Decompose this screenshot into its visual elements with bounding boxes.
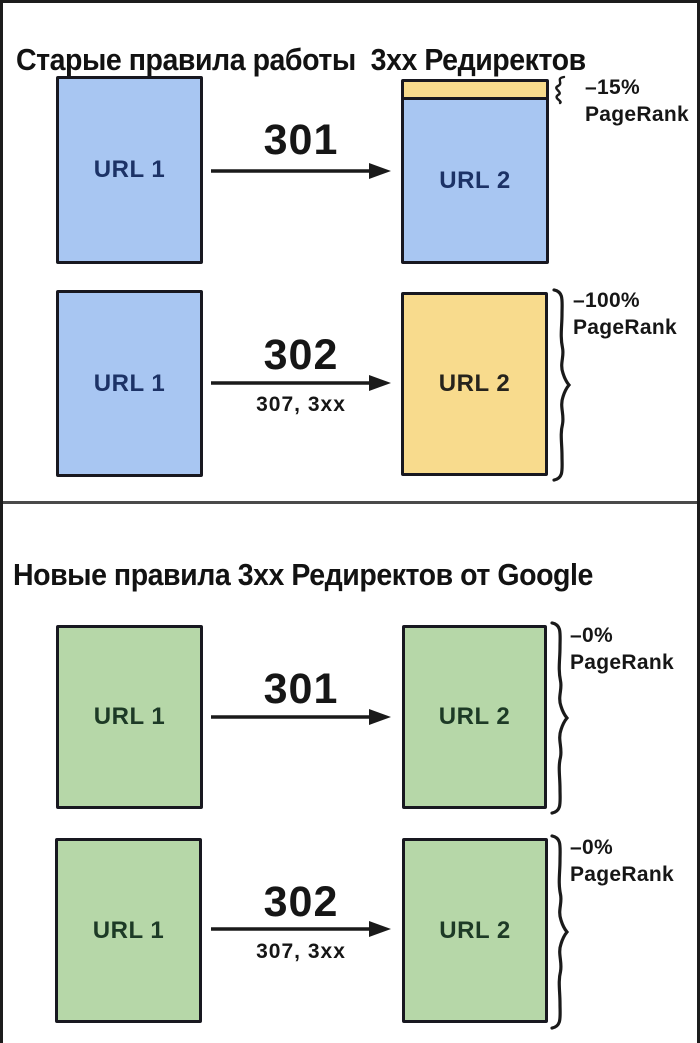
url-label: URL 2	[439, 917, 510, 945]
redirect-alt-codes-label: 307, 3xx	[209, 393, 393, 417]
pagerank-loss-strip	[404, 82, 546, 100]
curly-brace-icon	[551, 287, 573, 483]
url1-box: URL 1	[56, 290, 203, 477]
url-label: URL 1	[94, 156, 165, 184]
url2-box: URL 2	[401, 292, 548, 476]
url2-box-body: URL 2	[404, 100, 546, 261]
url-label: URL 1	[94, 703, 165, 731]
pagerank-annotation: –0% PageRank	[570, 834, 674, 888]
redirect-arrow-icon	[209, 918, 393, 940]
redirect-infographic: Старые правила работы 3хх Редиректов URL…	[0, 0, 700, 1043]
url2-box: URL 2	[401, 79, 549, 264]
curly-brace-icon	[549, 620, 571, 816]
pagerank-value: –0%	[570, 834, 674, 861]
pagerank-annotation: –100% PageRank	[573, 287, 677, 341]
pagerank-value: –15%	[585, 74, 689, 101]
redirect-arrow-icon	[209, 706, 393, 728]
pagerank-value: –0%	[570, 622, 674, 649]
panel-new-title: Новые правила 3хх Редиректов от Google	[13, 557, 593, 593]
url1-box: URL 1	[56, 76, 203, 264]
pagerank-label: PageRank	[573, 314, 677, 341]
url-label: URL 2	[439, 703, 510, 731]
url-label: URL 1	[93, 917, 164, 945]
pagerank-label: PageRank	[585, 101, 689, 128]
url2-box: URL 2	[402, 625, 547, 809]
pagerank-annotation: –0% PageRank	[570, 622, 674, 676]
small-brace-icon	[551, 75, 567, 105]
panel-new-rules: Новые правила 3хх Редиректов от Google U…	[3, 504, 697, 1040]
redirect-arrow-icon	[209, 160, 393, 182]
pagerank-value: –100%	[573, 287, 677, 314]
pagerank-label: PageRank	[570, 649, 674, 676]
curly-brace-icon	[549, 833, 571, 1031]
url-label: URL 1	[94, 370, 165, 398]
pagerank-annotation: –15% PageRank	[585, 74, 689, 128]
panel-old-rules: Старые правила работы 3хх Редиректов URL…	[3, 3, 697, 501]
url1-box: URL 1	[55, 838, 202, 1023]
redirect-arrow-icon	[209, 372, 393, 394]
panel-old-title: Старые правила работы 3хх Редиректов	[16, 42, 586, 78]
url1-box: URL 1	[56, 625, 203, 809]
redirect-alt-codes-label: 307, 3xx	[209, 940, 393, 964]
redirect-code-label: 301	[209, 116, 393, 165]
pagerank-label: PageRank	[570, 861, 674, 888]
url2-box: URL 2	[402, 838, 548, 1023]
url-label: URL 2	[439, 167, 510, 195]
url-label: URL 2	[439, 370, 510, 398]
